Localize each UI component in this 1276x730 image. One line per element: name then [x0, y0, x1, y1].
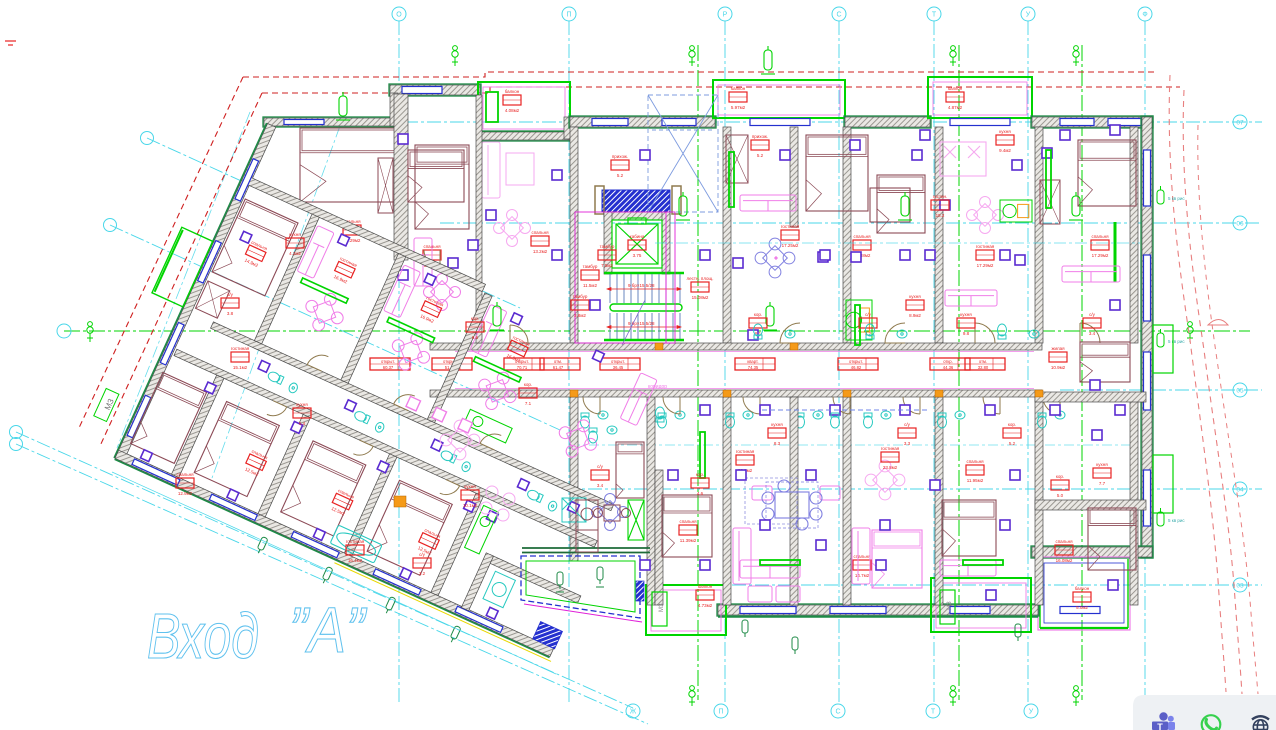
svg-text:32.80: 32.80: [978, 365, 989, 370]
svg-text:5.2: 5.2: [757, 153, 764, 158]
svg-text:кор.: кор.: [524, 382, 532, 387]
svg-text:с/у: с/у: [865, 312, 872, 317]
svg-text:с/у: с/у: [227, 292, 234, 297]
svg-text:3.8м2: 3.8м2: [574, 313, 586, 318]
svg-text:5.97м2: 5.97м2: [731, 105, 746, 110]
svg-text:11.5м2: 11.5м2: [583, 283, 598, 288]
svg-text:10.1м2: 10.1м2: [463, 503, 478, 508]
svg-text:тамбур: тамбур: [600, 244, 615, 249]
svg-text:балкон: балкон: [1075, 586, 1090, 591]
svg-text:8.6: 8.6: [472, 335, 479, 340]
svg-text:5.0: 5.0: [1057, 493, 1064, 498]
svg-text:16.08м2: 16.08м2: [1056, 558, 1073, 563]
svg-text:кухня: кухня: [296, 402, 308, 407]
svg-text:4.08м2: 4.08м2: [505, 108, 520, 113]
svg-text:прихож.: прихож.: [752, 134, 768, 139]
svg-text:тамбур: тамбур: [573, 294, 588, 299]
svg-text:кухня: кухня: [909, 294, 921, 299]
svg-text:Ф: Ф: [1142, 12, 1147, 19]
svg-text:кухня: кухня: [289, 232, 301, 237]
svg-text:T: T: [1157, 722, 1163, 730]
svg-text:3.4: 3.4: [1089, 331, 1096, 336]
svg-text:кухня: кухня: [999, 129, 1011, 134]
svg-text:с/у: с/у: [419, 552, 426, 557]
svg-text:спальня: спальня: [176, 472, 194, 477]
svg-text:тамбур: тамбур: [583, 264, 598, 269]
svg-text:70.71: 70.71: [517, 365, 528, 370]
svg-text:спальня: спальня: [1091, 234, 1109, 239]
svg-text:Ж: Ж: [630, 709, 637, 716]
svg-text:балкон: балкон: [948, 86, 963, 91]
svg-text:балкон: балкон: [698, 584, 713, 589]
svg-text:06: 06: [1236, 221, 1244, 228]
svg-text:спальня: спальня: [853, 554, 871, 559]
svg-text:гостиная: гостиная: [231, 346, 250, 351]
svg-text:балкон: балкон: [505, 89, 520, 94]
svg-text:3.2: 3.2: [419, 571, 426, 576]
svg-text:3.8: 3.8: [227, 311, 234, 316]
svg-text:МЗ: МЗ: [947, 601, 953, 610]
svg-text:12.9м2: 12.9м2: [178, 491, 193, 496]
svg-text:с/у: с/у: [597, 464, 604, 469]
svg-text:отм.: отм.: [979, 359, 987, 364]
svg-text:гостиная: гостиная: [346, 539, 365, 544]
svg-text:У: У: [1029, 709, 1034, 716]
svg-text:5 кв рис: 5 кв рис: [1168, 196, 1185, 201]
svg-text:15.2: 15.2: [936, 213, 945, 218]
svg-text:7.5м2: 7.5м2: [601, 263, 613, 268]
svg-text:спальня: спальня: [679, 519, 697, 524]
svg-text:23.8м2: 23.8м2: [883, 465, 898, 470]
svg-text:Т: Т: [931, 709, 936, 716]
svg-text:Т: Т: [932, 12, 937, 19]
svg-text:отм.: отм.: [554, 359, 562, 364]
svg-text:46.82: 46.82: [851, 365, 862, 370]
svg-text:спальня: спальня: [1055, 539, 1073, 544]
svg-text:16.4м2: 16.4м2: [348, 558, 363, 563]
svg-text:П: П: [566, 12, 571, 19]
svg-text:спальня: спальня: [531, 230, 549, 235]
svg-text:9.8: 9.8: [963, 331, 970, 336]
svg-text:С: С: [835, 709, 840, 716]
svg-text:4.87м2: 4.87м2: [948, 105, 963, 110]
svg-text:кухня: кухня: [960, 312, 972, 317]
svg-text:74.35: 74.35: [748, 365, 759, 370]
svg-text:03: 03: [1236, 583, 1244, 590]
svg-text:5 кв рис: 5 кв рис: [1168, 518, 1185, 523]
svg-text:О: О: [396, 12, 402, 19]
svg-text:8.3: 8.3: [774, 441, 781, 446]
svg-text:5.2: 5.2: [1009, 441, 1016, 446]
svg-text:открыт.: открыт.: [381, 359, 395, 364]
svg-text:открыт.: открыт.: [849, 359, 863, 364]
svg-text:44.36: 44.36: [943, 365, 954, 370]
svg-text:кухня: кухня: [771, 422, 783, 427]
svg-text:жилая: жилая: [1051, 346, 1065, 351]
svg-text:11.39м2: 11.39м2: [680, 538, 697, 543]
svg-text:кабина: кабина: [630, 234, 645, 239]
svg-text:5 кв рис: 5 кв рис: [1168, 339, 1185, 344]
svg-text:5.0м2: 5.0м2: [1076, 605, 1088, 610]
svg-text:7.7: 7.7: [1099, 481, 1106, 486]
svg-text:Р: Р: [723, 12, 728, 19]
svg-text:7.1: 7.1: [525, 401, 532, 406]
svg-text:гостин.: гостин.: [933, 194, 948, 199]
svg-text:балкон: балкон: [731, 86, 746, 91]
svg-text:кор.: кор.: [696, 472, 704, 477]
svg-text:15.08м2: 15.08м2: [692, 295, 709, 300]
svg-text:3.4: 3.4: [597, 483, 604, 488]
svg-text:11.95м2: 11.95м2: [967, 478, 984, 483]
svg-text:6.4: 6.4: [299, 421, 306, 426]
svg-text:07: 07: [1236, 120, 1244, 127]
svg-text:60.37: 60.37: [383, 365, 394, 370]
svg-text:прихож.: прихож.: [612, 154, 628, 159]
svg-text:кухня: кухня: [1096, 462, 1108, 467]
svg-text:4.6: 4.6: [697, 491, 704, 496]
svg-text:61.47: 61.47: [553, 365, 564, 370]
svg-text:с/у: с/у: [904, 422, 911, 427]
svg-text:кухня: кухня: [464, 484, 476, 489]
svg-text:МЗ: МЗ: [659, 603, 665, 612]
svg-text:кварт.: кварт.: [747, 359, 758, 364]
svg-text:гостиная: гостиная: [736, 449, 755, 454]
svg-text:П: П: [718, 709, 723, 716]
svg-text:У: У: [1026, 12, 1031, 19]
svg-text:5.2: 5.2: [617, 173, 624, 178]
svg-text:3.3: 3.3: [904, 441, 911, 446]
svg-text:15.1м2: 15.1м2: [233, 365, 248, 370]
svg-text:4.2м2: 4.2м2: [289, 251, 301, 256]
svg-text:13.2м2: 13.2м2: [533, 249, 548, 254]
svg-text:кор.: кор.: [754, 312, 762, 317]
svg-text:с/у: с/у: [1089, 312, 1096, 317]
svg-text:8.9м2: 8.9м2: [909, 313, 921, 318]
svg-text:36.45: 36.45: [613, 365, 624, 370]
svg-text:гостиная: гостиная: [881, 446, 900, 451]
svg-text:17.29м2: 17.29м2: [977, 263, 994, 268]
svg-text:04: 04: [1236, 487, 1244, 494]
svg-text:17.25м2: 17.25м2: [782, 243, 799, 248]
svg-text:откр.: откр.: [943, 359, 952, 364]
svg-text:гостиная: гостиная: [781, 224, 800, 229]
svg-text:9 бр×15,5/28: 9 бр×15,5/28: [628, 283, 655, 288]
svg-text:9.4м2: 9.4м2: [999, 148, 1011, 153]
svg-text:спальня: спальня: [966, 459, 984, 464]
svg-text:Вход: Вход: [147, 600, 259, 672]
svg-text:17.29м2: 17.29м2: [1092, 253, 1109, 258]
svg-text:4.73м2: 4.73м2: [698, 603, 713, 608]
svg-text:кор.: кор.: [1056, 474, 1064, 479]
svg-text:гостиная: гостиная: [976, 244, 995, 249]
svg-text:14.7м2: 14.7м2: [855, 573, 870, 578]
svg-text:10.9м2: 10.9м2: [1051, 365, 1066, 370]
svg-text:спальня: спальня: [853, 234, 871, 239]
svg-text:лестн. площ.: лестн. площ.: [687, 276, 714, 281]
svg-text:С: С: [836, 12, 841, 19]
svg-text:”А”: ”А”: [289, 594, 367, 666]
svg-text:05: 05: [1236, 388, 1244, 395]
svg-text:кор.: кор.: [471, 316, 479, 321]
svg-text:кор.: кор.: [1008, 422, 1016, 427]
svg-text:3.75: 3.75: [633, 253, 642, 258]
svg-text:открыт.: открыт.: [611, 359, 625, 364]
svg-text:коридор: коридор: [648, 384, 667, 390]
